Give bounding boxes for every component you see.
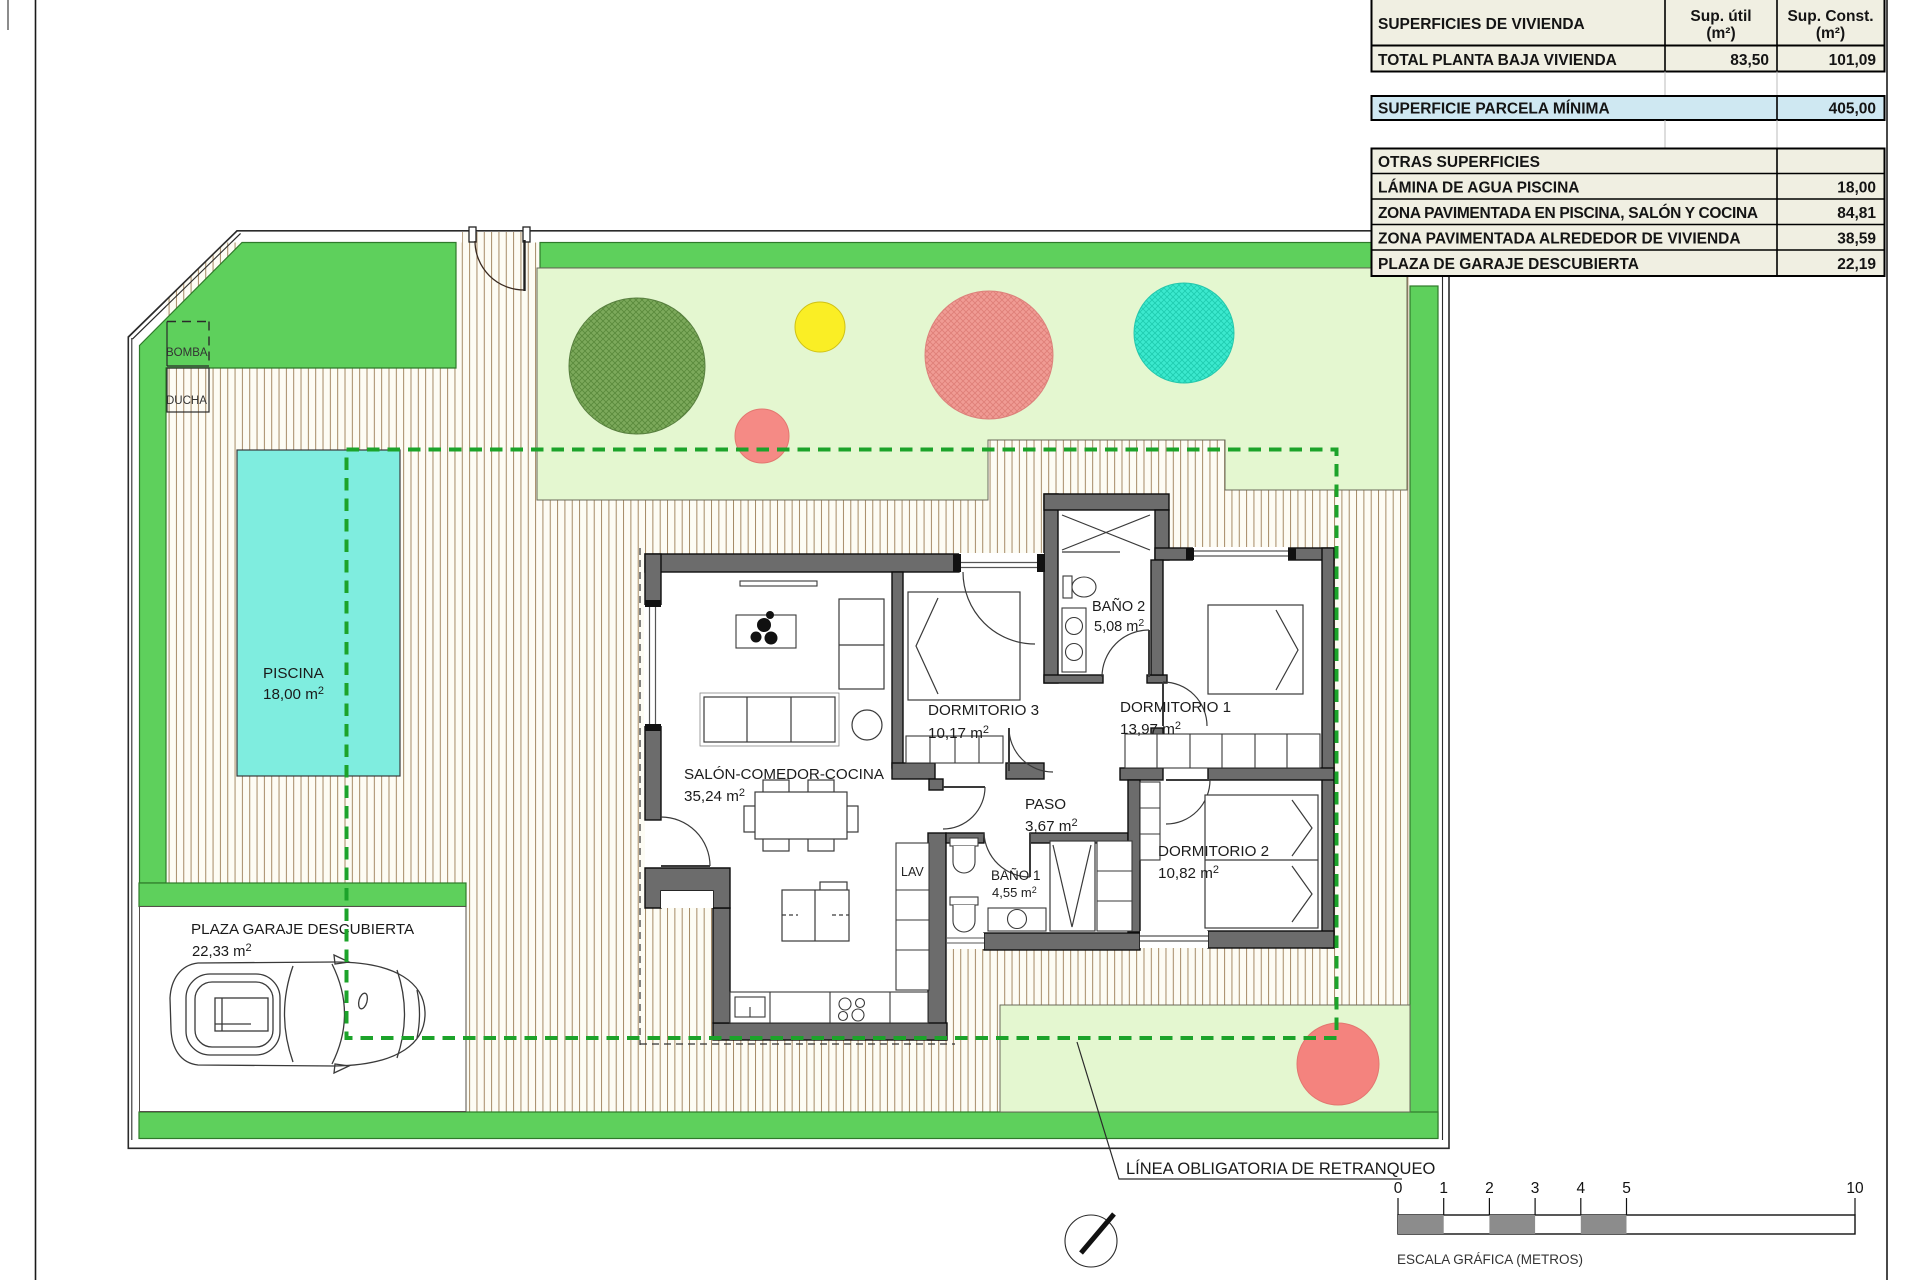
svg-text:LÍNEA OBLIGATORIA DE RETRANQUE: LÍNEA OBLIGATORIA DE RETRANQUEO (1126, 1159, 1435, 1178)
svg-text:PLAZA GARAJE DESCUBIERTA: PLAZA GARAJE DESCUBIERTA (191, 921, 415, 938)
svg-text:1: 1 (1439, 1180, 1448, 1197)
svg-text:405,00: 405,00 (1829, 101, 1876, 118)
svg-text:Sup. útil: Sup. útil (1690, 8, 1751, 25)
svg-text:ZONA PAVIMENTADA ALREDEDOR DE: ZONA PAVIMENTADA ALREDEDOR DE VIVIENDA (1378, 231, 1741, 248)
svg-text:38,59: 38,59 (1837, 231, 1876, 248)
svg-text:83,50: 83,50 (1730, 52, 1769, 69)
svg-text:10,82 m2: 10,82 m2 (1158, 864, 1219, 882)
svg-text:DORMITORIO 3: DORMITORIO 3 (928, 702, 1039, 719)
svg-text:DORMITORIO 2: DORMITORIO 2 (1158, 843, 1269, 860)
svg-text:84,81: 84,81 (1837, 205, 1876, 222)
svg-text:Sup. Const.: Sup. Const. (1787, 8, 1873, 25)
svg-text:PISCINA: PISCINA (263, 665, 325, 682)
svg-text:3,67 m2: 3,67 m2 (1025, 817, 1078, 835)
svg-text:10: 10 (1846, 1180, 1864, 1197)
svg-text:DORMITORIO 1: DORMITORIO 1 (1120, 699, 1231, 716)
svg-text:4,55 m2: 4,55 m2 (992, 885, 1037, 900)
svg-text:SALÓN-COMEDOR-COCINA: SALÓN-COMEDOR-COCINA (684, 766, 885, 783)
svg-text:OTRAS SUPERFICIES: OTRAS SUPERFICIES (1378, 154, 1540, 171)
svg-text:5: 5 (1622, 1180, 1631, 1197)
svg-text:18,00 m2: 18,00 m2 (263, 685, 324, 703)
svg-text:(m²): (m²) (1816, 25, 1845, 42)
svg-text:0: 0 (1394, 1180, 1403, 1197)
svg-text:SUPERFICIE PARCELA MÍNIMA: SUPERFICIE PARCELA MÍNIMA (1378, 101, 1610, 118)
svg-text:101,09: 101,09 (1829, 52, 1877, 69)
svg-text:SUPERFICIES DE VIVIENDA: SUPERFICIES DE VIVIENDA (1378, 16, 1585, 33)
svg-text:13,97 m2: 13,97 m2 (1120, 720, 1181, 738)
svg-text:22,33 m2: 22,33 m2 (192, 942, 252, 960)
svg-text:3: 3 (1531, 1180, 1540, 1197)
svg-text:ZONA PAVIMENTADA EN PISCINA, S: ZONA PAVIMENTADA EN PISCINA, SALÓN Y COC… (1378, 204, 1758, 222)
svg-text:PLAZA DE GARAJE DESCUBIERTA: PLAZA DE GARAJE DESCUBIERTA (1378, 256, 1639, 273)
svg-text:35,24 m2: 35,24 m2 (684, 787, 745, 805)
svg-text:2: 2 (1485, 1180, 1494, 1197)
svg-text:5,08 m2: 5,08 m2 (1094, 617, 1144, 635)
svg-text:BAÑO 1: BAÑO 1 (991, 868, 1041, 883)
svg-text:22,19: 22,19 (1837, 256, 1876, 273)
svg-text:TOTAL PLANTA BAJA VIVIENDA: TOTAL PLANTA BAJA VIVIENDA (1378, 52, 1617, 69)
svg-text:BOMBA: BOMBA (166, 347, 208, 359)
svg-text:10,17 m2: 10,17 m2 (928, 724, 989, 742)
svg-text:BAÑO 2: BAÑO 2 (1092, 598, 1145, 615)
svg-text:18,00: 18,00 (1837, 180, 1876, 197)
svg-text:ESCALA GRÁFICA (METROS): ESCALA GRÁFICA (METROS) (1397, 1252, 1583, 1267)
svg-text:LAV: LAV (901, 865, 924, 879)
svg-text:PASO: PASO (1025, 796, 1066, 813)
svg-text:(m²): (m²) (1706, 25, 1735, 42)
svg-text:4: 4 (1576, 1180, 1585, 1197)
svg-text:DUCHA: DUCHA (166, 395, 207, 407)
svg-text:LÁMINA DE AGUA PISCINA: LÁMINA DE AGUA PISCINA (1378, 180, 1580, 197)
